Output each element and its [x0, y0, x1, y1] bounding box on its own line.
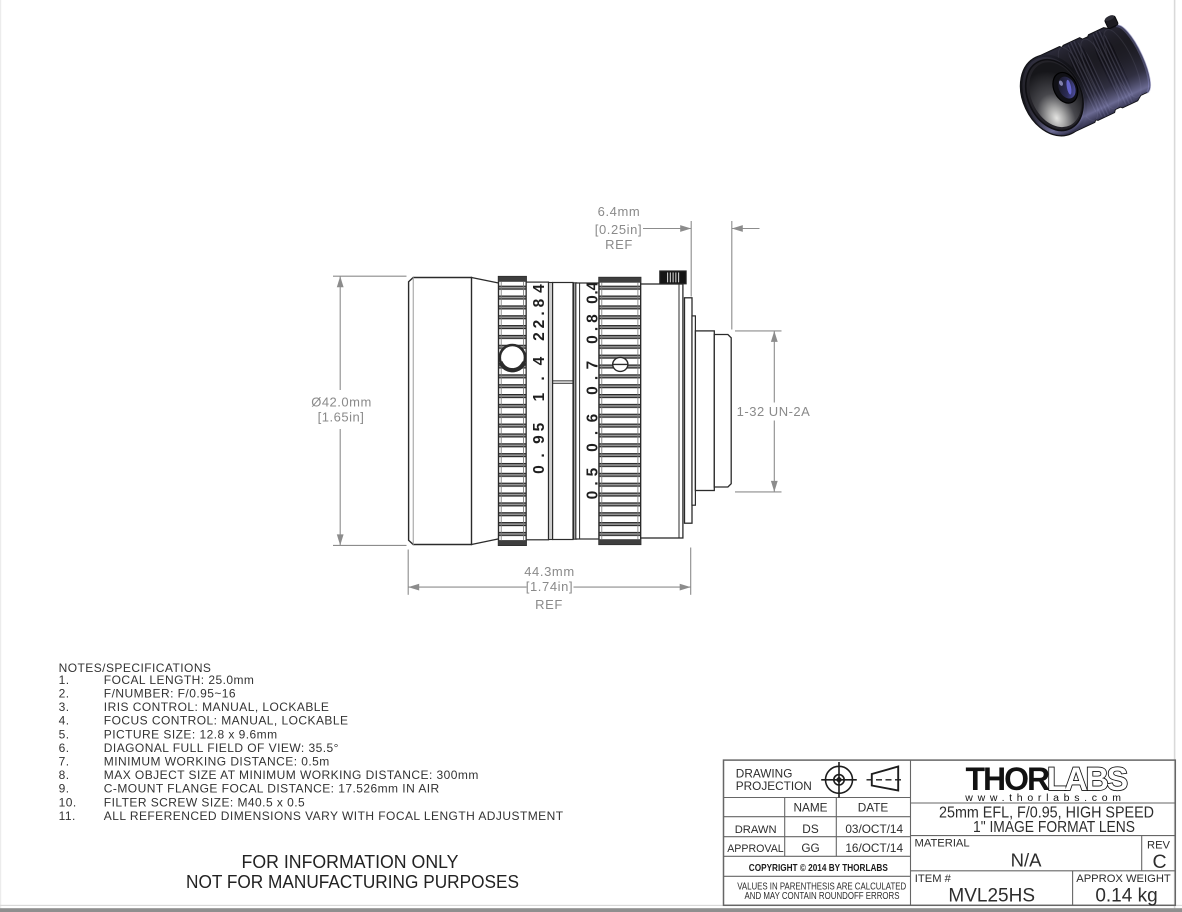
- svg-text:FOR INFORMATION ONLY: FOR INFORMATION ONLY: [242, 851, 459, 872]
- svg-text:C: C: [1152, 851, 1166, 873]
- svg-text:Ø42.0mm: Ø42.0mm: [311, 395, 372, 410]
- svg-text:1-32 UN-2A: 1-32 UN-2A: [737, 404, 811, 419]
- svg-text:2: 2: [531, 332, 548, 341]
- svg-text:7.: 7.: [59, 755, 70, 769]
- svg-text:5.: 5.: [59, 727, 70, 741]
- svg-text:2.: 2.: [59, 687, 70, 701]
- svg-text:APPROX WEIGHT: APPROX WEIGHT: [1076, 873, 1171, 885]
- svg-text:3.: 3.: [59, 700, 70, 714]
- svg-text:PROJECTION: PROJECTION: [736, 779, 812, 793]
- svg-text:1" IMAGE FORMAT LENS: 1" IMAGE FORMAT LENS: [973, 819, 1135, 836]
- svg-text:.: .: [531, 376, 548, 380]
- svg-text:[0.25in]: [0.25in]: [595, 222, 642, 237]
- svg-text:1.: 1.: [59, 673, 70, 687]
- svg-text:REF: REF: [535, 597, 563, 612]
- svg-text:[1.65in]: [1.65in]: [318, 410, 365, 425]
- svg-text:PICTURE SIZE: 12.8 x 9.6mm: PICTURE SIZE: 12.8 x 9.6mm: [104, 727, 278, 741]
- svg-text:1: 1: [531, 392, 548, 401]
- svg-text:F/NUMBER: F/0.95~16: F/NUMBER: F/0.95~16: [104, 687, 236, 701]
- svg-text:0.14 kg: 0.14 kg: [1095, 886, 1157, 907]
- svg-text:.: .: [531, 453, 548, 457]
- svg-text:MVL25HS: MVL25HS: [948, 886, 1035, 907]
- svg-text:0: 0: [531, 465, 548, 474]
- svg-text:ALL REFERENCED DIMENSIONS VARY: ALL REFERENCED DIMENSIONS VARY WITH FOCA…: [104, 809, 564, 823]
- svg-text:FILTER SCREW SIZE: M40.5 x 0.5: FILTER SCREW SIZE: M40.5 x 0.5: [104, 795, 305, 809]
- svg-text:9: 9: [531, 435, 548, 444]
- svg-text:ITEM #: ITEM #: [915, 873, 952, 885]
- svg-text:6.4mm: 6.4mm: [598, 204, 641, 219]
- svg-text:44.3mm: 44.3mm: [524, 564, 575, 579]
- svg-text:C-MOUNT FLANGE FOCAL DISTANCE:: C-MOUNT FLANGE FOCAL DISTANCE: 17.526mm …: [104, 782, 440, 796]
- svg-text:2: 2: [531, 320, 548, 329]
- svg-text:5: 5: [531, 422, 548, 431]
- svg-text:11.: 11.: [59, 809, 76, 823]
- svg-text:6.: 6.: [59, 741, 70, 755]
- svg-text:9.: 9.: [59, 782, 70, 796]
- svg-text:FOCUS CONTROL: MANUAL, LOCKABL: FOCUS CONTROL: MANUAL, LOCKABLE: [104, 714, 349, 728]
- svg-text:MINIMUM WORKING DISTANCE: 0.5m: MINIMUM WORKING DISTANCE: 0.5m: [104, 755, 330, 769]
- svg-text:MATERIAL: MATERIAL: [915, 838, 970, 850]
- svg-text:DATE: DATE: [858, 801, 889, 815]
- svg-text:NOT FOR MANUFACTURING PURPOSES: NOT FOR MANUFACTURING PURPOSES: [186, 871, 519, 892]
- svg-text:10.: 10.: [59, 795, 77, 809]
- svg-text:DIAGONAL FULL FIELD OF VIEW: 3: DIAGONAL FULL FIELD OF VIEW: 35.5°: [104, 741, 339, 755]
- svg-text:8.: 8.: [59, 768, 70, 782]
- svg-text:N/A: N/A: [1011, 850, 1043, 871]
- svg-text:8: 8: [531, 298, 548, 307]
- svg-text:APPROVAL: APPROVAL: [727, 843, 784, 855]
- svg-text:REV: REV: [1147, 840, 1171, 852]
- svg-text:[1.74in]: [1.74in]: [526, 579, 573, 594]
- svg-text:www.thorlabs.com: www.thorlabs.com: [964, 792, 1125, 804]
- svg-text:IRIS CONTROL: MANUAL, LOCKABLE: IRIS CONTROL: MANUAL, LOCKABLE: [104, 700, 330, 714]
- svg-text:4: 4: [531, 356, 548, 365]
- svg-text:MAX OBJECT SIZE AT MINIMUM WOR: MAX OBJECT SIZE AT MINIMUM WORKING DISTA…: [104, 768, 479, 782]
- svg-text:GG: GG: [801, 841, 819, 855]
- svg-text:.: .: [531, 311, 548, 315]
- svg-text:AND MAY CONTAIN ROUNDOFF ERROR: AND MAY CONTAIN ROUNDOFF ERRORS: [745, 891, 900, 902]
- svg-text:16/OCT/14: 16/OCT/14: [845, 841, 903, 855]
- svg-text:4: 4: [531, 284, 548, 293]
- svg-text:03/OCT/14: 03/OCT/14: [845, 822, 903, 836]
- svg-text:DS: DS: [802, 822, 819, 836]
- svg-text:COPYRIGHT © 2014 BY THORLABS: COPYRIGHT © 2014 BY THORLABS: [749, 863, 888, 874]
- svg-text:NAME: NAME: [793, 801, 827, 815]
- svg-text:4.: 4.: [59, 714, 70, 728]
- svg-text:DRAWN: DRAWN: [735, 824, 777, 836]
- svg-text:REF: REF: [605, 237, 633, 252]
- svg-text:FOCAL LENGTH: 25.0mm: FOCAL LENGTH: 25.0mm: [104, 673, 255, 687]
